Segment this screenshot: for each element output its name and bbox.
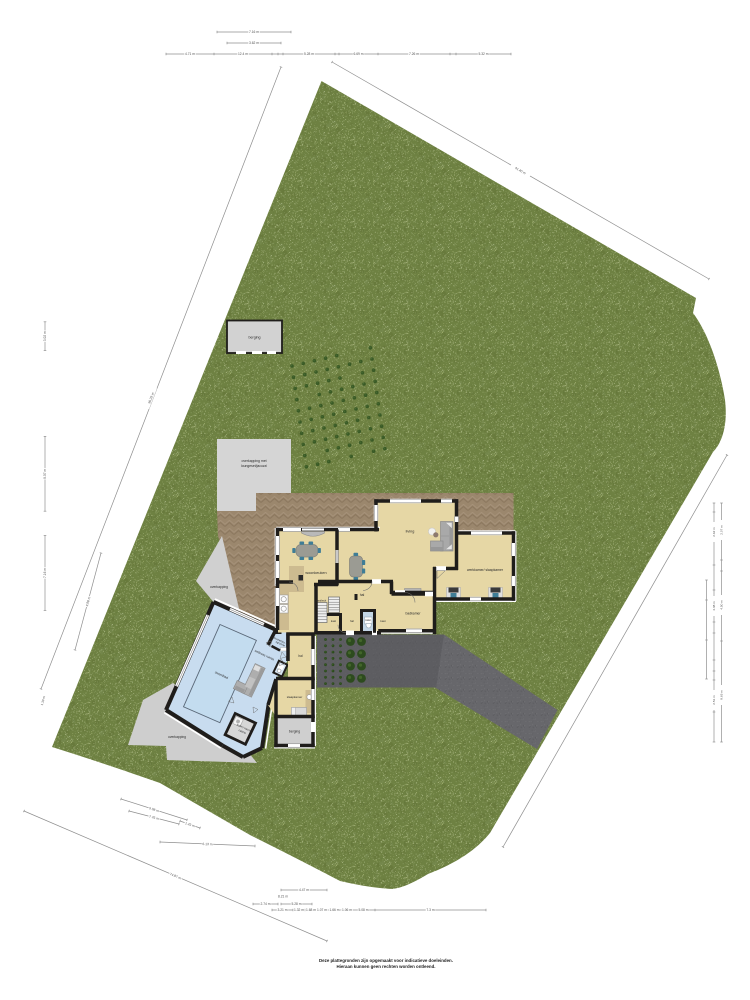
svg-text:2.07 m: 2.07 m <box>720 525 724 535</box>
svg-text:8.21 m: 8.21 m <box>278 895 288 899</box>
svg-text:living: living <box>406 530 415 534</box>
svg-text:2.62 m: 2.62 m <box>712 527 716 537</box>
svg-text:3.62 m: 3.62 m <box>249 41 259 45</box>
svg-text:1.06 m: 1.06 m <box>342 908 352 912</box>
svg-text:kast: kast <box>380 619 385 623</box>
svg-text:7.26 m: 7.26 m <box>409 52 419 56</box>
svg-text:berging: berging <box>289 730 300 734</box>
svg-text:9.07 m: 9.07 m <box>43 469 47 479</box>
svg-text:berging: berging <box>249 336 261 340</box>
svg-text:7.16 m: 7.16 m <box>43 568 47 578</box>
svg-text:3.21 m: 3.21 m <box>277 908 287 912</box>
svg-text:werkkamer/ slaapkamer: werkkamer/ slaapkamer <box>467 568 504 572</box>
svg-text:4.50 m: 4.50 m <box>720 600 724 610</box>
svg-text:overkapping: overkapping <box>168 735 186 739</box>
svg-text:Hieraan kunnen geen rechten wo: Hieraan kunnen geen rechten worden ontle… <box>336 964 435 969</box>
svg-text:3.02 m: 3.02 m <box>43 331 47 341</box>
svg-text:2.74 m: 2.74 m <box>260 902 270 906</box>
svg-text:woonkeuken: woonkeuken <box>305 571 326 575</box>
svg-text:overkapping: overkapping <box>210 585 228 589</box>
svg-text:hal: hal <box>360 593 365 597</box>
svg-text:overkapping met: overkapping met <box>241 459 266 463</box>
svg-text:6.13 m: 6.13 m <box>202 842 212 846</box>
svg-text:hal: hal <box>298 654 303 658</box>
svg-text:hal: hal <box>350 619 354 623</box>
svg-text:4.47 m: 4.47 m <box>299 888 309 892</box>
svg-text:5.08 m: 5.08 m <box>358 908 368 912</box>
svg-text:4.38 m: 4.38 m <box>712 601 716 611</box>
svg-text:badkamer: badkamer <box>405 612 421 616</box>
svg-text:8.63 m: 8.63 m <box>720 690 724 700</box>
svg-text:12.4 m: 12.4 m <box>238 52 248 56</box>
svg-text:loungeset/jacuzzi: loungeset/jacuzzi <box>241 464 267 468</box>
svg-text:7.3 m: 7.3 m <box>426 908 434 912</box>
svg-text:2.51 m: 2.51 m <box>712 695 716 705</box>
svg-text:toilet: toilet <box>365 618 371 622</box>
svg-text:5.28 m: 5.28 m <box>291 902 301 906</box>
svg-text:kast: kast <box>331 619 336 623</box>
svg-text:1.07 m: 1.07 m <box>317 908 327 912</box>
svg-text:1.66 m: 1.66 m <box>329 908 339 912</box>
svg-text:1.32 m: 1.32 m <box>294 908 304 912</box>
svg-text:1.68 m: 1.68 m <box>306 908 316 912</box>
svg-text:5.28 m: 5.28 m <box>304 52 314 56</box>
svg-text:slaapkamer: slaapkamer <box>287 695 303 699</box>
svg-text:4.71 m: 4.71 m <box>185 52 195 56</box>
svg-text:7.16 m: 7.16 m <box>249 30 259 34</box>
svg-text:kast/tech: kast/tech <box>316 599 327 603</box>
svg-text:Deze plattegronden zijn opgema: Deze plattegronden zijn opgemaakt voor i… <box>319 958 453 963</box>
svg-text:5.32 m: 5.32 m <box>478 52 488 56</box>
svg-text:6.69 m: 6.69 m <box>353 52 363 56</box>
